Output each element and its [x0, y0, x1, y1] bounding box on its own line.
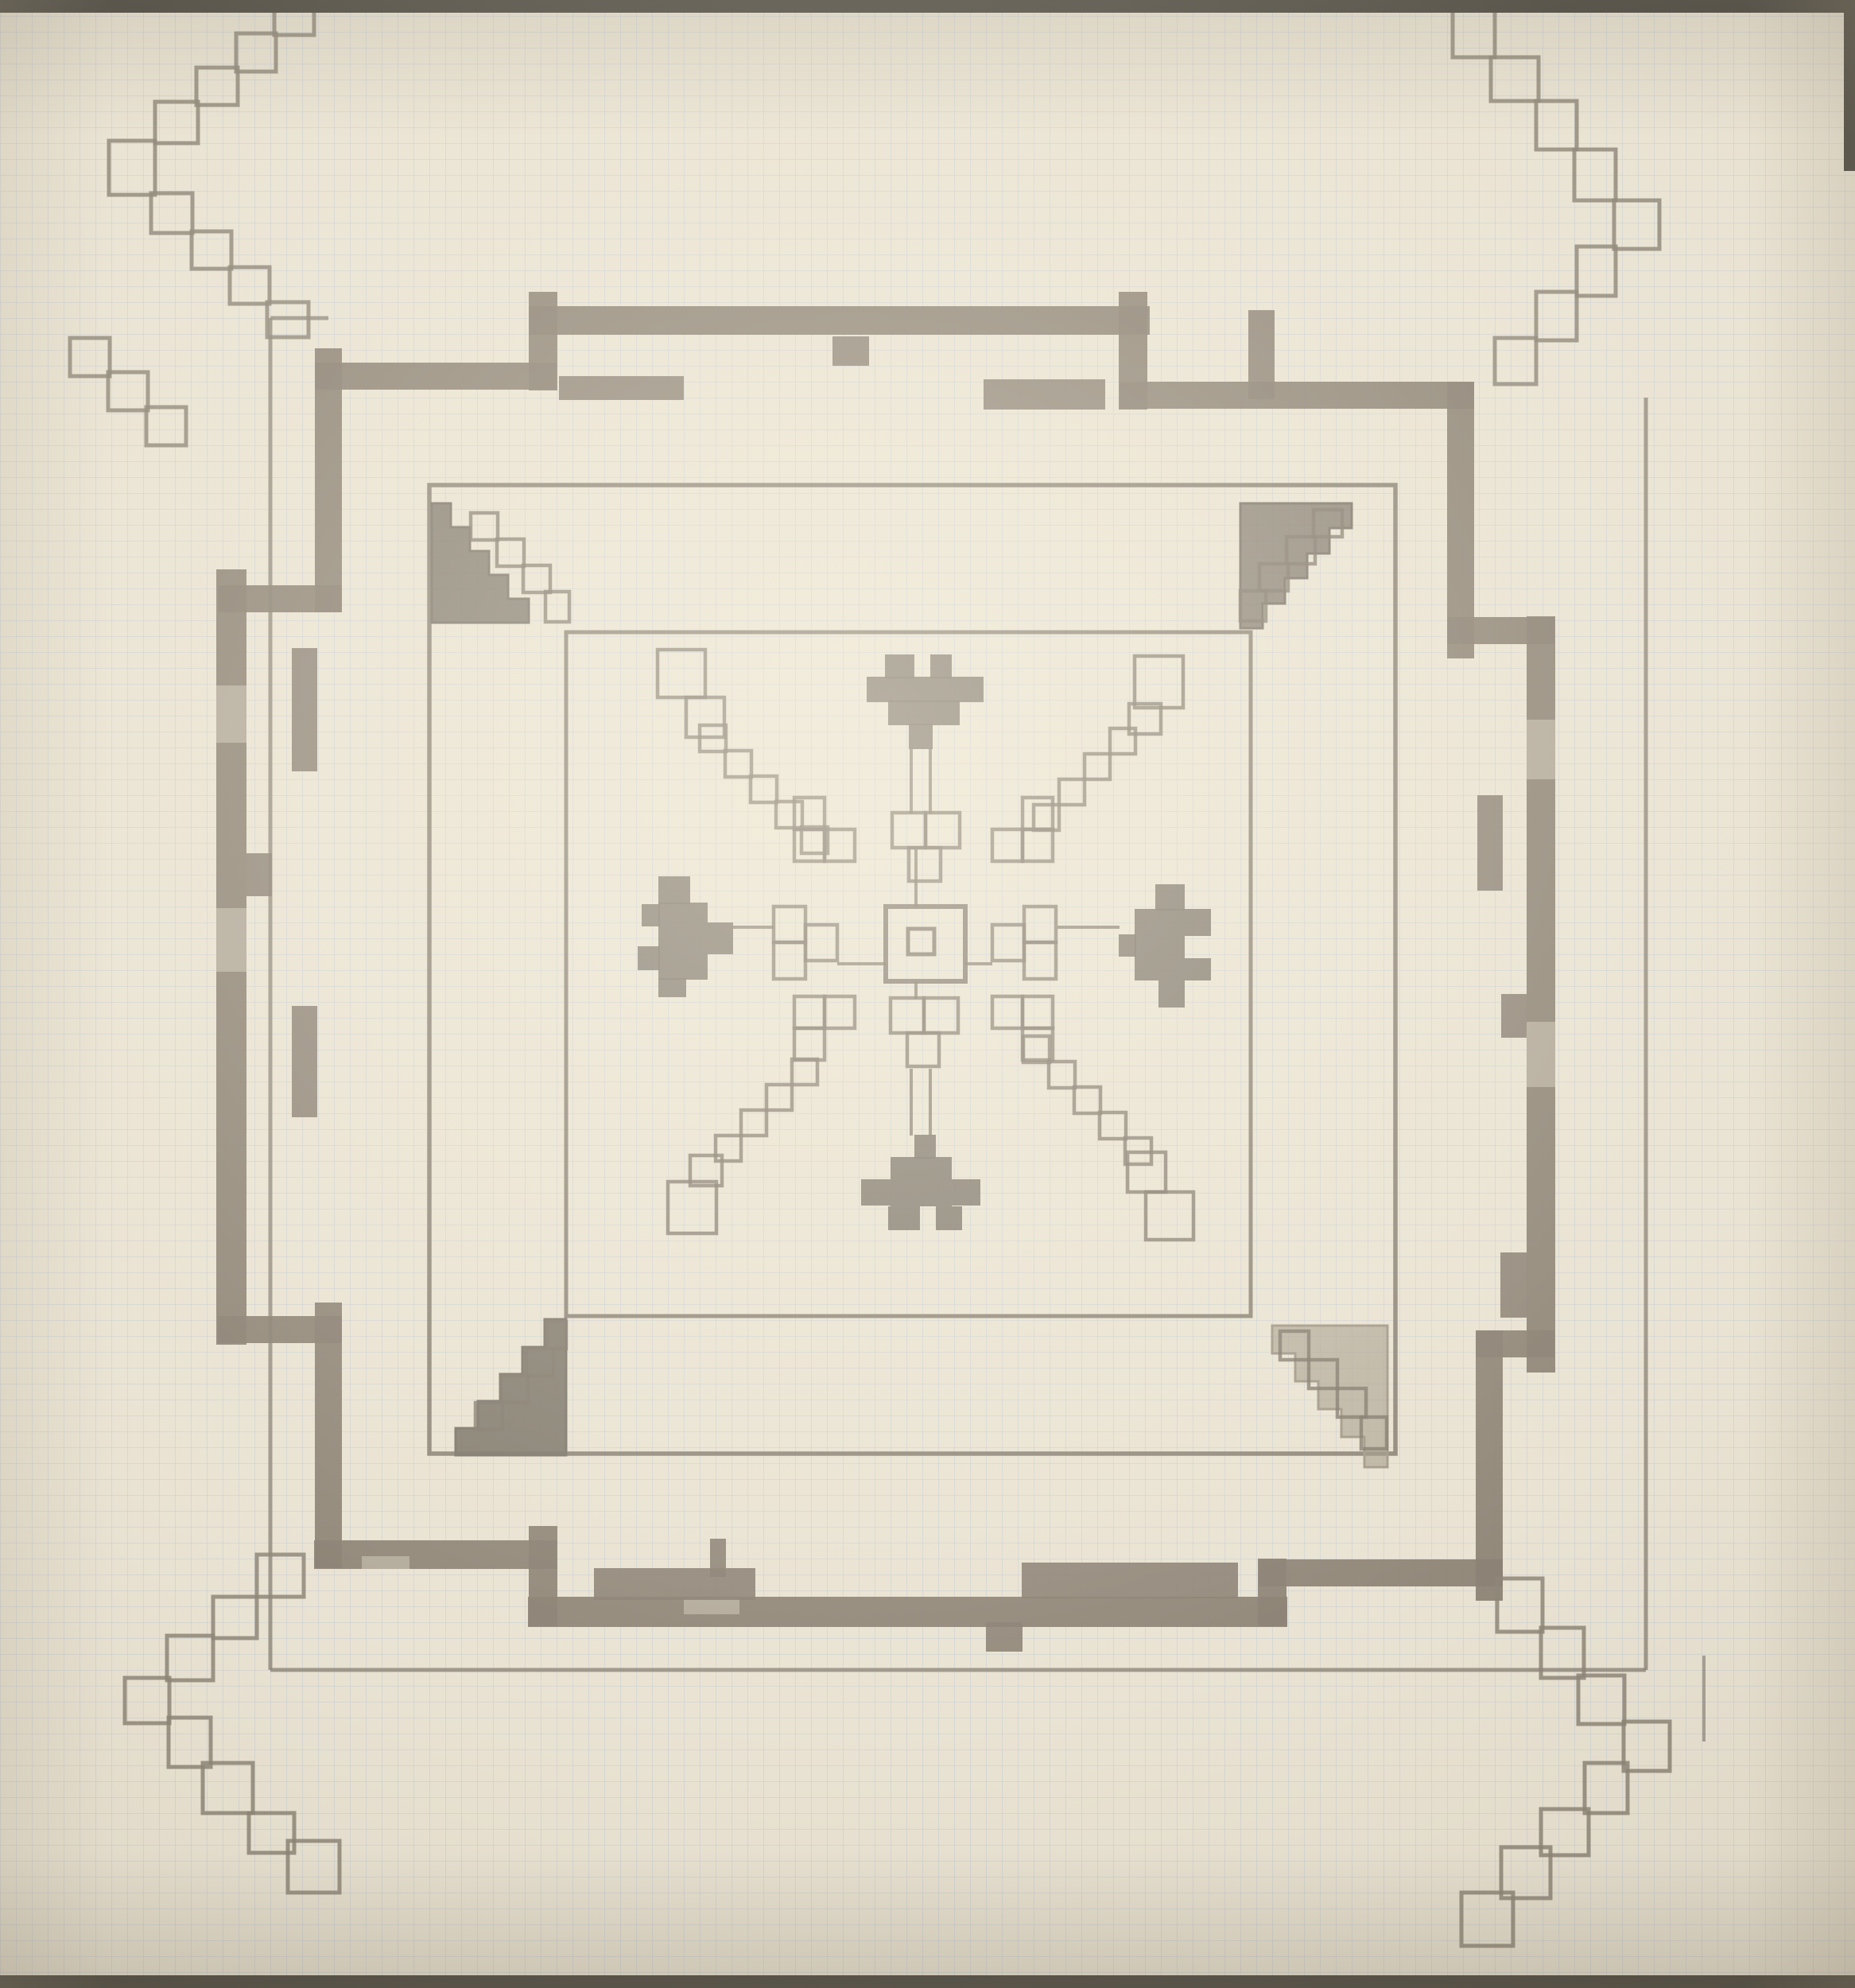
wall-worn-patch [216, 908, 248, 972]
plus-motif-block [1135, 909, 1185, 980]
crenellation-dash [1501, 994, 1527, 1038]
photo-edge-bar [0, 0, 1855, 13]
wall-worn-patch [362, 1556, 409, 1572]
plus-motif-block [1119, 934, 1136, 957]
crenellation-dash [986, 1622, 1023, 1652]
plus-motif-block [914, 1135, 936, 1159]
plus-motif-block [930, 654, 952, 678]
crenellation-dash [1477, 795, 1503, 891]
plus-motif-block [658, 978, 686, 997]
crenellation-dash [1500, 1252, 1527, 1318]
plus-motif-block [638, 946, 660, 970]
plus-motif-block [891, 1157, 952, 1206]
plus-motif-block [909, 724, 933, 749]
pixel-fortress-mandala-drawing [0, 0, 1855, 1988]
plus-motif-block [1155, 884, 1185, 911]
photo-edge-bar [1844, 0, 1855, 171]
crenellation-dash [984, 379, 1105, 410]
crenellation-dash [292, 1006, 317, 1117]
plus-motif-block [1185, 958, 1211, 980]
plus-motif-block [888, 1206, 920, 1230]
plus-motif-block [867, 677, 984, 702]
plus-motif-block [885, 654, 914, 678]
crenellation-dash [1248, 310, 1275, 399]
plus-motif-block [658, 876, 690, 904]
plus-motif-block [658, 903, 708, 980]
crenellation-dash [246, 853, 272, 896]
wall-worn-patch [684, 1598, 739, 1614]
wall-worn-patch [1525, 720, 1558, 779]
plus-motif-block [888, 701, 960, 725]
plus-motif-block [952, 1179, 980, 1206]
photo-of-graph-paper-drawing [0, 0, 1855, 1988]
plus-motif-block [708, 922, 733, 954]
plus-motif-block [642, 904, 660, 926]
wall-worn-patch [216, 685, 248, 743]
plus-motif-block [936, 1206, 962, 1230]
plus-motif-block [1158, 980, 1185, 1008]
plus-motif-block [861, 1179, 891, 1206]
crenellation-dash [594, 1568, 755, 1600]
wall-worn-patch [1525, 1022, 1558, 1087]
crenellation-dash [559, 376, 684, 400]
plus-motif-block [1185, 909, 1211, 936]
photo-edge-bar [0, 1975, 1855, 1988]
crenellation-dash [832, 336, 869, 366]
crenellation-dash [1022, 1563, 1238, 1598]
crenellation-dash [292, 648, 317, 771]
